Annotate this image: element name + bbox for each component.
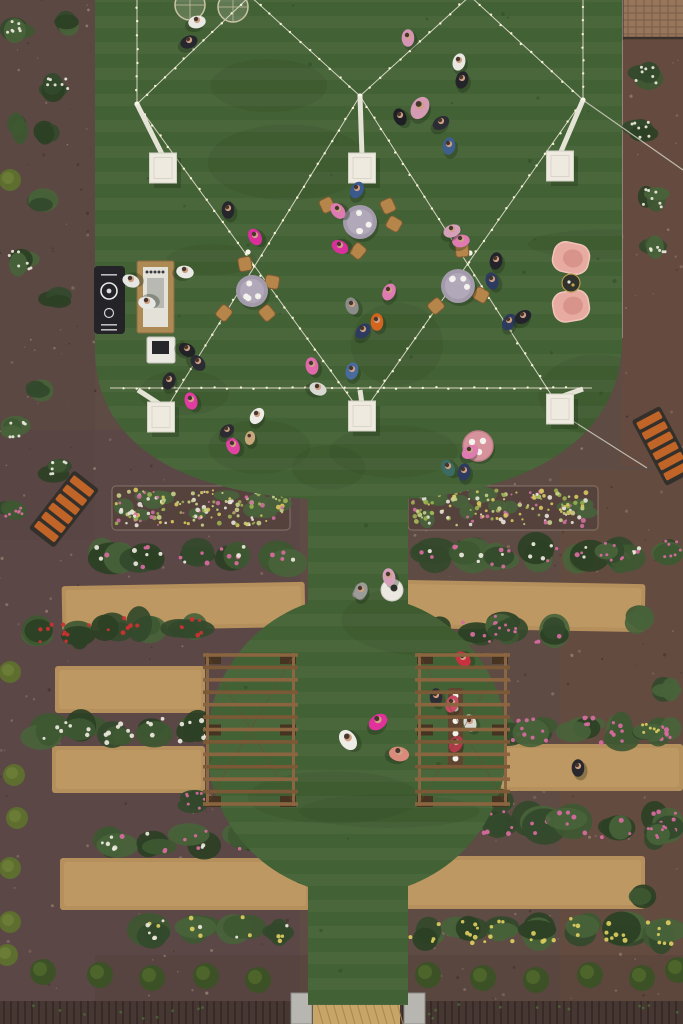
rose-flower [150,733,155,738]
plant-flower [610,559,613,562]
shrub-highlight [2,860,14,872]
rose-flower [220,547,224,551]
light-bulb [551,70,553,72]
rose-flower [531,717,535,721]
flower-dot [547,495,552,500]
mulch-speckle [70,554,72,556]
shrub-highlight [668,960,682,974]
rose-flower [600,835,604,839]
rose-flower [156,924,160,928]
light-bulb [240,386,242,388]
turf-fleck [244,686,248,690]
rose-flower [196,846,200,850]
turf-fleck [178,315,181,318]
flower-dot [519,501,521,503]
light-bulb [330,369,332,371]
flower-dot [198,494,200,496]
mulch-speckle [86,212,89,215]
mulch-speckle [34,349,36,351]
rose-flower [604,931,608,935]
mulch-speckle [148,994,150,996]
flower-dot [153,491,155,493]
person-hair [449,699,453,703]
rose-flower [576,933,580,937]
rose-flower [552,938,556,942]
rose-flower [437,922,441,926]
light-bulb [226,387,228,389]
rose-bush [543,617,566,639]
flower-dot [283,498,288,503]
plant-flower [644,67,647,70]
garden-plant [4,18,26,43]
flower-dot [117,518,121,522]
flower-dot [468,498,470,500]
mulch-speckle [672,62,674,64]
bar-bottle [146,271,149,274]
rose-flower [205,560,210,565]
rose-flower [657,933,660,936]
rose-flower [61,623,65,627]
mulch-speckle [124,802,127,805]
rose-flower [657,941,661,945]
rose-flower [536,640,540,644]
rose-flower [566,811,570,815]
person-hair [458,236,462,240]
flower-dot [248,524,250,526]
rose-flower [510,939,514,943]
flower-dot [139,520,142,523]
person-hair [252,232,256,236]
flower-dot [224,506,227,509]
flower-dot [118,501,121,504]
plant-flower [8,435,11,438]
mulch-speckle [559,554,561,556]
pergola-slat [415,790,510,794]
light-bulb [291,386,293,388]
plant-flower [17,435,20,438]
rose-flower [428,549,432,553]
light-bulb [559,132,561,134]
mulch-speckle [675,142,677,144]
light-bulb [204,344,206,346]
person-hair [575,763,579,767]
plant-flower [604,542,607,545]
rose-flower [541,730,544,733]
rose-flower [490,563,493,566]
mulch-speckle [4,749,6,751]
mulch-speckle [28,164,29,165]
light-bulb [198,188,200,190]
mulch-speckle [86,128,88,130]
flower-dot [485,509,488,512]
mulch-speckle [87,230,89,232]
mulch-speckle [52,250,54,252]
flower-dot [560,511,563,514]
garden-plant [43,73,63,95]
rose-flower [582,555,585,558]
flower-dot [275,498,277,500]
mulch-speckle [10,361,13,364]
light-bulb [159,134,161,136]
light-bulb [182,57,184,59]
rose-flower [180,625,183,628]
rose-flower [525,718,529,722]
light-bulb [276,295,278,297]
light-bulb [222,221,224,223]
flower-dot [532,496,535,499]
flower-dot [252,522,254,524]
flower-dot [156,512,159,515]
rose-flower [614,932,619,937]
rose-flower [618,723,623,728]
light-bulb [380,128,382,130]
light-bulb [499,387,501,389]
rose-flower [461,620,465,624]
light-bulb [232,299,234,301]
rose-flower [571,815,576,820]
light-bulb [399,58,401,60]
mulch-speckle [130,469,132,471]
flower-dot [491,498,494,501]
tan-planter-hi [64,862,306,906]
mulch-speckle [17,49,18,50]
flower-dot [559,518,563,522]
road-grass-tuft [428,1013,431,1016]
mulch-speckle [676,868,678,870]
person-hair [349,366,353,370]
plant-flower [667,543,670,546]
rose-flower [141,565,145,569]
light-bulb [428,31,430,33]
flower-dot [164,522,167,525]
flower-dot [225,500,228,503]
plant-flower [664,540,667,543]
light-bulb [306,337,308,339]
rose-flower [55,725,59,729]
flower-dot [486,514,490,518]
mulch-speckle [86,234,89,237]
rose-flower [668,736,671,739]
road-grass-tuft [58,1009,61,1012]
rose-flower [488,934,493,939]
road-grass-tuft [156,1016,159,1019]
rose-flower [488,640,491,643]
mulch-speckle [48,688,51,691]
flower-dot [149,515,153,519]
mulch-speckle [570,998,571,999]
garden-plant [26,384,50,398]
plant-flower [649,727,652,730]
mulch-speckle [42,153,45,156]
light-bulb [283,306,285,308]
flower-dot [221,492,223,494]
mulch-speckle [85,25,88,28]
rose-flower [62,632,66,636]
plant-flower [621,556,624,559]
light-bulb [182,379,184,381]
light-bulb [552,143,554,145]
plant-flower [17,22,20,25]
flower-dot [571,521,574,524]
rose-flower [38,627,42,631]
mulch-speckle [49,597,52,600]
rose-flower [59,729,63,733]
rose-flower [636,550,640,554]
mulch-speckle [92,341,95,344]
flower-dot [192,519,195,522]
turf-fleck [613,279,617,283]
rose-flower [227,554,232,559]
mulch-speckle [27,396,29,398]
mulch-speckle [16,855,19,858]
rose-flower [582,716,587,721]
flower-dot [581,518,586,523]
person-hair [438,118,442,122]
flower-dot [147,492,152,497]
plant-flower [186,794,189,797]
rose-flower [452,545,457,550]
rose-flower [470,632,475,637]
light-bulb [190,177,192,179]
mulch-speckle [549,478,552,481]
turf-fleck [533,238,535,240]
light-bulb [402,163,404,165]
mulch-speckle [210,949,213,952]
person-hair [489,276,493,280]
light-bulb [530,51,532,53]
rose-flower [672,817,676,821]
flower-dot [547,520,552,525]
mulch-speckle [507,545,510,548]
light-bulb [280,23,282,25]
aerial-garden-photo [0,0,683,1024]
shrub-highlight [196,966,210,980]
flower-dot [469,523,472,526]
light-bulb [399,359,401,361]
light-bulb [582,19,584,21]
light-bulb [289,31,291,33]
rose-bush [518,532,555,564]
garden-plant [631,606,654,631]
person-hair [315,384,319,388]
person-hair [374,317,378,321]
turf-fleck [308,62,312,66]
garden-plant [9,252,27,276]
rose-flower [610,936,614,940]
rose-flower [620,729,624,733]
mulch-speckle [619,953,622,956]
mulch-speckle [677,59,679,61]
light-bulb [268,12,270,14]
mulch-speckle [60,329,61,330]
rose-bush [223,915,252,939]
plant-flower [4,515,7,518]
mulch-speckle [652,293,654,295]
flower-dot [535,504,538,507]
rose-flower [110,835,113,838]
rose-bush [142,839,177,855]
flower-dot [562,496,566,500]
plant-flower [658,249,661,252]
plant-flower [54,83,57,86]
rose-flower [183,838,187,842]
turf-fleck [528,159,532,163]
rose-flower [87,623,90,626]
pergola-slat [415,740,510,744]
plant-flower [654,81,657,84]
light-bulb [377,390,379,392]
light-bulb [491,229,493,231]
rose-flower [651,811,655,815]
flower-dot [191,491,195,495]
flower-dot [430,501,434,505]
mulch-speckle [181,645,183,647]
drink [571,283,574,286]
plant-flower [663,555,666,558]
garden-plant [12,119,29,144]
rose-flower [409,935,413,939]
flower-dot [580,524,584,528]
light-bulb [499,24,501,26]
plant-flower [9,422,12,425]
light-bulb [213,210,215,212]
light-bulb [490,13,492,15]
light-bulb [423,196,425,198]
rose-flower [190,617,195,622]
light-bulb [439,22,441,24]
mulch-speckle [625,372,627,374]
mulch-speckle [680,672,682,674]
person-hair [449,226,453,230]
rose-flower [499,548,504,553]
flower-dot [256,521,261,526]
mulch-speckle [570,654,573,657]
pergola-slat [203,678,298,682]
rose-flower [101,841,104,844]
mulch-speckle [66,402,68,404]
rose-flower [590,716,595,721]
flower-dot [470,509,472,511]
rose-flower [145,832,149,836]
rose-flower [490,925,494,929]
turf-fleck [536,96,539,99]
rose-flower [145,545,150,550]
flower-dot [137,494,142,499]
flower-dot [476,490,479,493]
plant-flower [200,792,203,795]
flower-dot [539,489,544,494]
light-bulb [135,89,137,91]
rose-flower [584,723,588,727]
flower-dot [245,523,248,526]
flower-dot [554,488,558,492]
flower-dot [212,500,215,503]
plant-flower [650,827,653,830]
flower-dot [212,489,214,491]
person-hair [405,33,409,37]
flower-dot [414,519,419,524]
flower-dot [501,493,504,496]
person-hair [467,447,471,451]
turf-blotch [330,425,458,477]
rose-flower [107,628,110,631]
mulch-speckle [45,102,47,104]
light-bulb [383,387,385,389]
plant-flower [507,629,510,632]
plant-flower [64,77,67,80]
rose-flower [190,927,195,932]
light-bulb [513,196,515,198]
turf-fleck [347,837,349,839]
flower-dot [475,506,479,510]
turf-fleck [146,177,149,180]
rose-flower [198,925,202,929]
pergola-slat [415,690,510,694]
mulch-speckle [601,658,603,660]
mulch-speckle [529,910,532,913]
light-bulb [324,152,326,154]
mulch-speckle [449,576,450,577]
rose-flower [201,846,204,849]
mulch-speckle [66,224,67,225]
rose-flower [112,847,116,851]
mulch-speckle [45,610,48,613]
turf-fleck [409,355,413,359]
rose-bush [175,916,217,938]
road-grass-tuft [431,1017,434,1020]
flower-dot [235,522,238,525]
plant-flower [635,79,638,82]
mulch-speckle [645,539,647,541]
rose-flower [198,934,202,938]
light-bulb [483,240,485,242]
rose-flower [522,732,526,736]
rose-flower [162,919,165,922]
rose-flower [501,553,504,556]
rose-flower [609,730,613,734]
person-hair [186,37,190,41]
mulch-speckle [29,448,30,449]
person-hair [337,242,341,246]
flower-dot [272,516,276,520]
flower-dot [428,503,430,505]
flower-dot [179,511,182,514]
light-bulb [582,72,584,74]
light-bulb [581,47,583,49]
rose-flower [544,738,548,742]
bar-logo-table [94,266,125,334]
flower-dot [249,504,254,509]
rose-flower [152,937,155,940]
light-bulb [449,13,451,15]
flower-dot [128,515,131,518]
light-bulb [221,22,223,24]
rose-flower [135,623,139,627]
plant-flower [8,254,11,257]
garden-plant [629,125,658,141]
mulch-speckle [628,838,630,840]
turf-fleck [550,351,553,354]
mulch-speckle [634,958,636,960]
flower-dot [245,495,249,499]
rose-flower [478,553,483,558]
light-bulb [343,386,345,388]
person-hair [166,376,170,380]
plant-flower [640,66,643,69]
pergola-slat [203,703,298,707]
flower-dot [249,500,253,504]
light-bulb [309,49,311,51]
